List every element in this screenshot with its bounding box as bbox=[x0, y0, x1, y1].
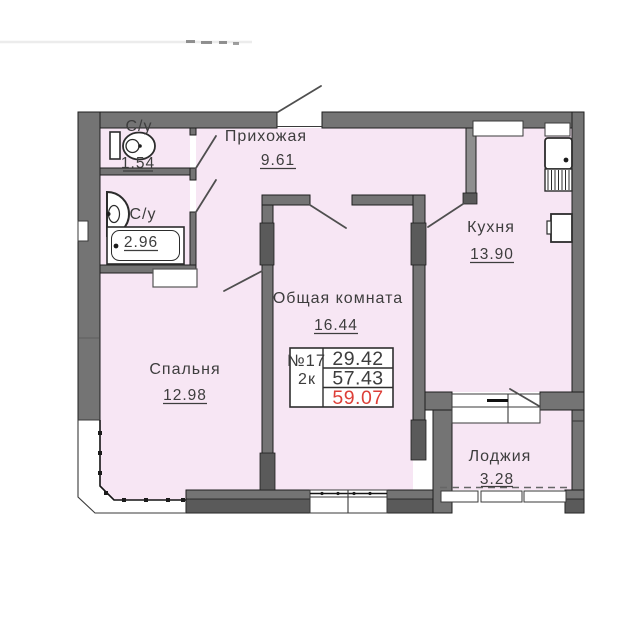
living-label: Общая комната bbox=[273, 290, 403, 307]
pilaster-living-left-top bbox=[260, 223, 274, 265]
total-area: 59.07 bbox=[332, 387, 383, 409]
room-fill-living bbox=[273, 200, 413, 490]
entry-door bbox=[277, 86, 322, 127]
vent-niche bbox=[473, 121, 523, 136]
living-window bbox=[310, 490, 387, 513]
wall-bottom-bedroom-band bbox=[186, 499, 310, 513]
wall-right bbox=[572, 112, 584, 513]
entry-door-swing bbox=[278, 86, 321, 112]
duct-shaft bbox=[153, 269, 197, 287]
pilaster-living-right-bottom bbox=[411, 420, 426, 460]
kitchen-sink-icon bbox=[545, 138, 572, 191]
unit-number: №17 bbox=[287, 352, 326, 370]
bathroom-area: 2.96 bbox=[124, 234, 158, 251]
wall-top-left bbox=[78, 112, 277, 128]
wall-loggia-left-pier bbox=[425, 392, 452, 410]
balcony-window-sill bbox=[452, 407, 540, 423]
living-area: 16.44 bbox=[314, 317, 358, 334]
loggia-window-door bbox=[452, 389, 540, 423]
bathroom-label: С/у bbox=[130, 206, 157, 223]
vent-niche bbox=[545, 123, 570, 136]
wall-kitchen-partition bbox=[466, 128, 476, 193]
hallway-area: 9.61 bbox=[261, 152, 295, 169]
bedroom-label: Спальня bbox=[149, 361, 220, 378]
loggia-area: 3.28 bbox=[480, 471, 514, 488]
room-floors bbox=[100, 128, 572, 500]
stove-icon bbox=[547, 214, 572, 242]
wall-wc-right-c bbox=[190, 212, 196, 265]
kitchen-door-jamb bbox=[463, 193, 477, 204]
wall-wc-right-b bbox=[190, 168, 196, 180]
unit-type: 2к bbox=[298, 371, 316, 388]
wc-area: 1.54 bbox=[121, 155, 155, 172]
pilaster-living-right-top bbox=[411, 223, 426, 265]
wall-bottom-living-band bbox=[387, 499, 433, 513]
pilaster-living-left-bottom bbox=[260, 453, 275, 490]
kitchen-area: 13.90 bbox=[470, 246, 514, 263]
unit-info-table: №17 2к 29.42 57.43 59.07 bbox=[287, 348, 393, 409]
wall-left bbox=[78, 112, 100, 420]
bedroom-area: 12.98 bbox=[163, 387, 207, 404]
loggia-label: Лоджия bbox=[469, 448, 532, 465]
wc-label: С/у bbox=[126, 118, 153, 135]
wall-niche-left bbox=[78, 221, 88, 241]
hallway-label: Прихожая bbox=[225, 128, 307, 145]
room-fill-corridor bbox=[196, 200, 262, 273]
kitchen-label: Кухня bbox=[467, 219, 515, 236]
floor-plan-drawing: С/у 1.54 С/у 2.96 Прихожая 9.61 Кухня 13… bbox=[0, 0, 620, 620]
wall-loggia-right-pier bbox=[540, 392, 584, 410]
wall-wc-right-a bbox=[190, 128, 196, 135]
wall-loggia-stub-band bbox=[565, 499, 584, 513]
wall-living-top-left bbox=[262, 195, 310, 205]
floor-plan: С/у 1.54 С/у 2.96 Прихожая 9.61 Кухня 13… bbox=[0, 0, 620, 620]
cropped-dimension-artifact bbox=[0, 40, 252, 45]
